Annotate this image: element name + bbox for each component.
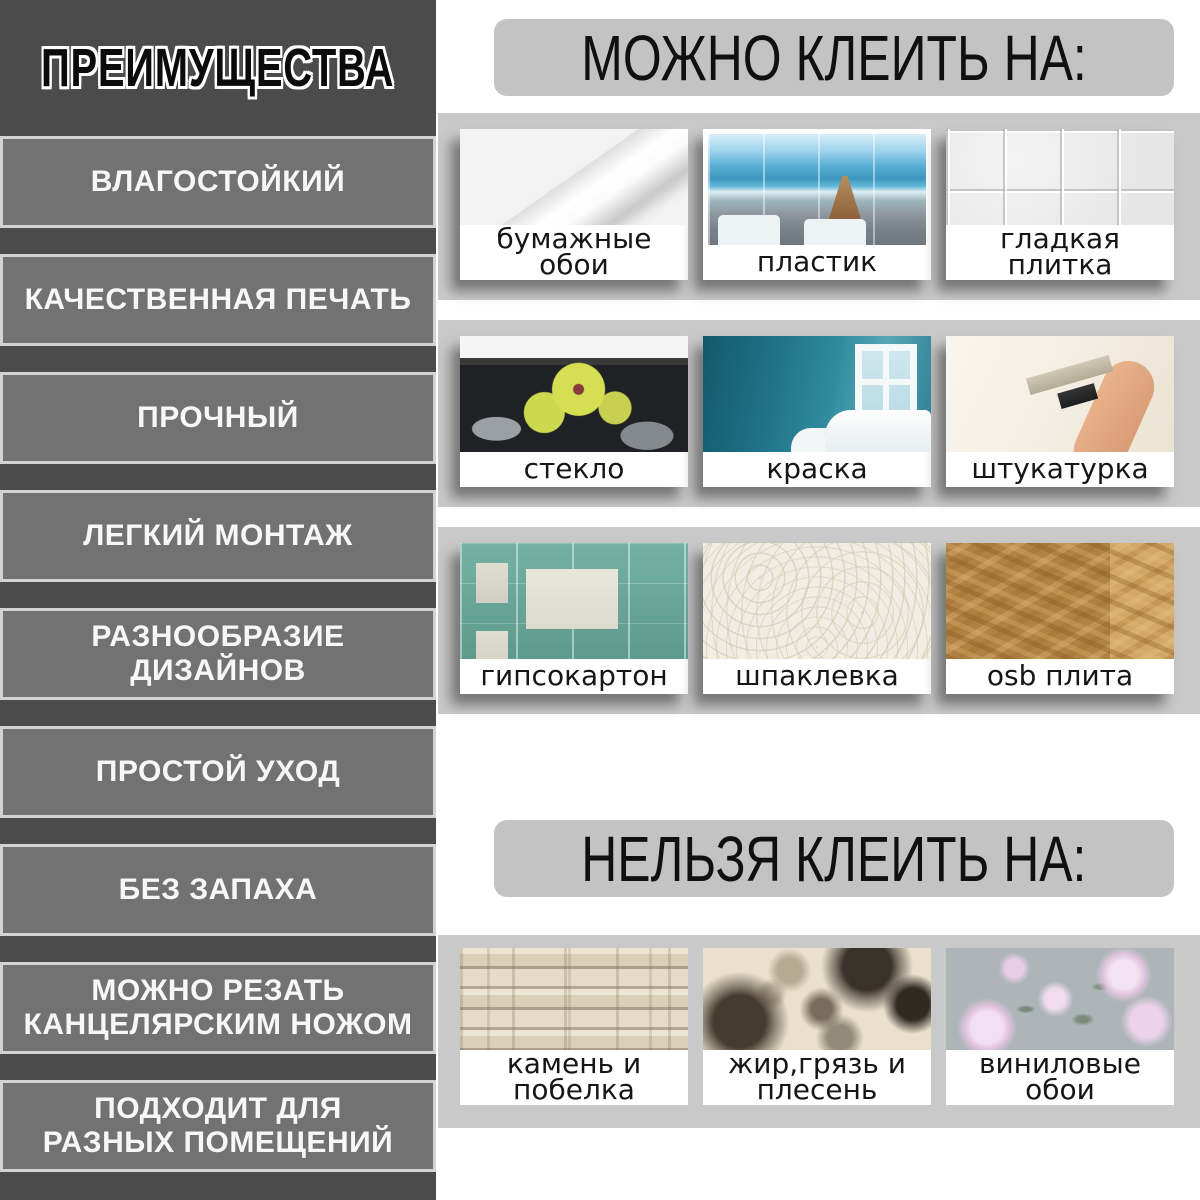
surface-tile-putty: шпаклевка <box>703 543 931 694</box>
cannot-glue-row: камень и побелка жир,грязь и плесень вин… <box>438 935 1200 1128</box>
cannot-glue-header-label: НЕЛЬЗЯ КЛЕИТЬ НА: <box>581 827 1086 891</box>
vinyl-wallpaper-image <box>946 948 1174 1050</box>
advantage-item-easy-install: ЛЕГКИЙ МОНТАЖ <box>0 490 436 582</box>
surface-tile-label: краска <box>703 452 931 487</box>
surface-tile-label: стекло <box>460 452 688 487</box>
surface-tile-label: камень и побелка <box>460 1050 688 1105</box>
advantages-sidebar: ПРЕИМУЩЕСТВА ВЛАГОСТОЙКИЙ КАЧЕСТВЕННАЯ П… <box>0 0 436 1200</box>
surface-tile-smooth-tile: гладкая плитка <box>946 129 1174 280</box>
surface-tile-label: шпаклевка <box>703 659 931 694</box>
plastic-panels-image <box>708 134 926 245</box>
surface-tile-label: гладкая плитка <box>946 225 1174 280</box>
painted-wall-image <box>703 336 931 452</box>
can-glue-row-2: стекло краска штукатурка <box>438 320 1200 507</box>
surface-tile-label: пластик <box>703 245 931 280</box>
content-area: МОЖНО КЛЕИТЬ НА: бумажные обои пластик г… <box>436 0 1200 1200</box>
surface-tile-label: osb плита <box>946 659 1174 694</box>
surface-tile-label: жир,грязь и плесень <box>703 1050 931 1105</box>
infographic-page: ПРЕИМУЩЕСТВА ВЛАГОСТОЙКИЙ КАЧЕСТВЕННАЯ П… <box>0 0 1200 1200</box>
surface-tile-vinyl-wallpaper: виниловые обои <box>946 948 1174 1105</box>
advantage-item-durable: ПРОЧНЫЙ <box>0 372 436 464</box>
advantage-item-waterproof: ВЛАГОСТОЙКИЙ <box>0 136 436 228</box>
surface-tile-label: штукатурка <box>946 452 1174 487</box>
can-glue-row-1: бумажные обои пластик гладкая плитка <box>438 113 1200 300</box>
can-glue-header-label: МОЖНО КЛЕИТЬ НА: <box>581 26 1087 90</box>
surface-tile-plaster: штукатурка <box>946 336 1174 487</box>
cannot-glue-header: НЕЛЬЗЯ КЛЕИТЬ НА: <box>494 820 1174 897</box>
glass-backsplash-image <box>460 336 688 452</box>
surface-tile-paint: краска <box>703 336 931 487</box>
advantage-item-cut-with-knife: МОЖНО РЕЗАТЬ КАНЦЕЛЯРСКИМ НОЖОМ <box>0 962 436 1054</box>
osb-board-image <box>946 543 1174 659</box>
advantage-item-quality-print: КАЧЕСТВЕННАЯ ПЕЧАТЬ <box>0 254 436 346</box>
can-glue-header: МОЖНО КЛЕИТЬ НА: <box>494 19 1174 96</box>
surface-tile-glass: стекло <box>460 336 688 487</box>
advantage-item-any-room: ПОДХОДИТ ДЛЯ РАЗНЫХ ПОМЕЩЕНИЙ <box>0 1080 436 1172</box>
surface-tile-paper-wallpaper: бумажные обои <box>460 129 688 280</box>
stone-whitewash-image <box>460 948 688 1050</box>
can-glue-row-3: гипсокартон шпаклевка osb плита <box>438 527 1200 714</box>
putty-texture-image <box>703 543 931 659</box>
surface-tile-grease-dirt-mold: жир,грязь и плесень <box>703 948 931 1105</box>
plaster-trowel-image <box>946 336 1174 452</box>
surface-tile-label: виниловые обои <box>946 1050 1174 1105</box>
advantage-item-design-variety: РАЗНООБРАЗИЕ ДИЗАЙНОВ <box>0 608 436 700</box>
drywall-image <box>460 543 688 659</box>
surface-tile-plastic: пластик <box>703 129 931 280</box>
surface-tile-osb: osb плита <box>946 543 1174 694</box>
sidebar-title: ПРЕИМУЩЕСТВА <box>0 0 436 136</box>
grease-dirt-mold-image <box>703 948 931 1050</box>
surface-tile-stone-whitewash: камень и побелка <box>460 948 688 1105</box>
sidebar-title-label: ПРЕИМУЩЕСТВА <box>41 37 394 99</box>
smooth-tile-image <box>946 129 1174 225</box>
advantage-item-no-smell: БЕЗ ЗАПАХА <box>0 844 436 936</box>
paper-wallpaper-image <box>460 129 688 225</box>
surface-tile-label: гипсокартон <box>460 659 688 694</box>
surface-tile-drywall: гипсокартон <box>460 543 688 694</box>
advantage-item-easy-care: ПРОСТОЙ УХОД <box>0 726 436 818</box>
surface-tile-label: бумажные обои <box>460 225 688 280</box>
